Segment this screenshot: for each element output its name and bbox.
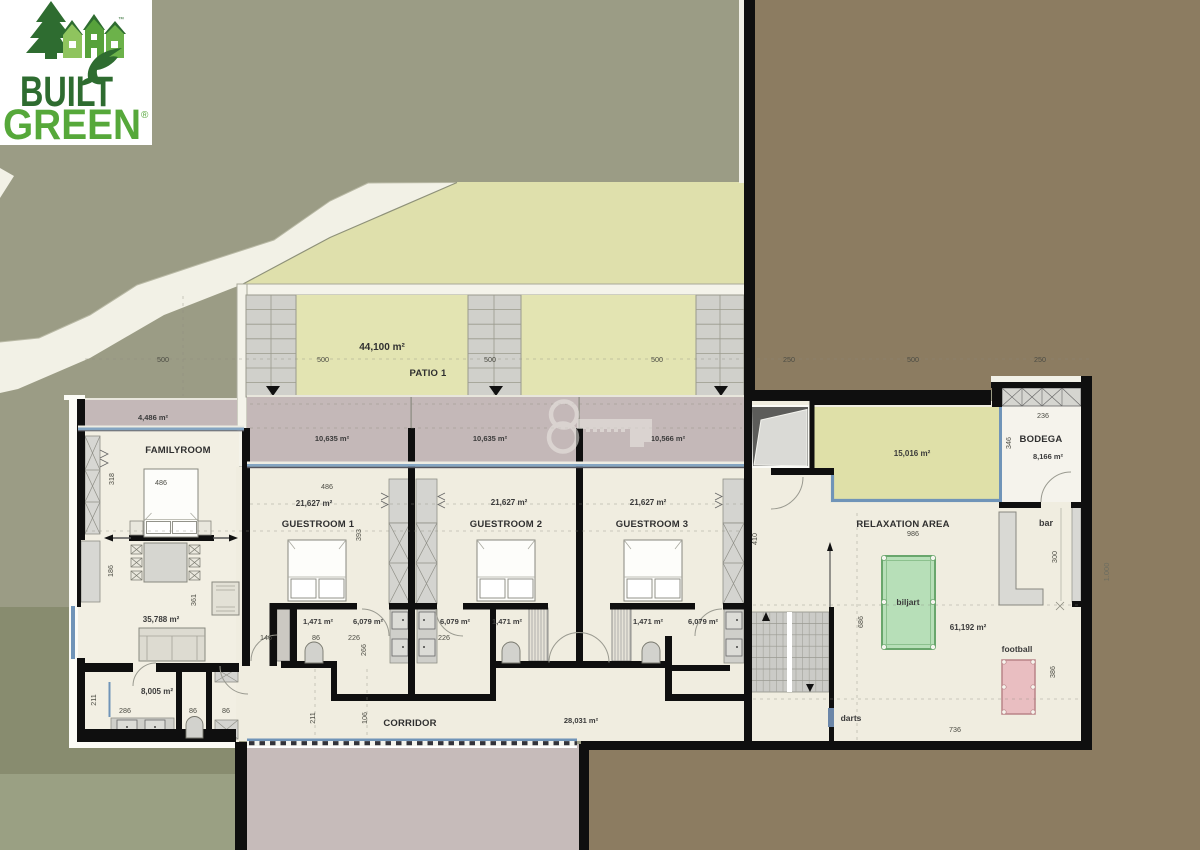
svg-text:410: 410: [750, 533, 759, 545]
svg-text:226: 226: [438, 633, 450, 642]
svg-text:BODEGA: BODEGA: [1020, 434, 1063, 445]
svg-text:486: 486: [155, 478, 167, 487]
svg-text:GUESTROOM 3: GUESTROOM 3: [616, 519, 688, 530]
svg-text:10,635 m²: 10,635 m²: [473, 434, 508, 443]
svg-text:10,566 m²: 10,566 m²: [651, 434, 686, 443]
svg-text:986: 986: [907, 529, 919, 538]
svg-text:™: ™: [118, 16, 124, 23]
svg-text:4,486 m²: 4,486 m²: [138, 413, 169, 422]
svg-text:86: 86: [312, 633, 320, 642]
svg-text:21,627 m²: 21,627 m²: [491, 498, 528, 507]
svg-text:21,627 m²: 21,627 m²: [296, 499, 333, 508]
svg-text:393: 393: [354, 529, 363, 541]
svg-text:211: 211: [89, 694, 98, 705]
svg-text:1,471 m²: 1,471 m²: [492, 617, 523, 626]
svg-text:386: 386: [1048, 666, 1057, 678]
svg-text:266: 266: [359, 644, 368, 656]
svg-text:500: 500: [317, 355, 329, 364]
svg-text:250: 250: [1034, 355, 1046, 364]
svg-text:10,635 m²: 10,635 m²: [315, 434, 350, 443]
svg-text:1.000: 1.000: [1102, 563, 1111, 582]
svg-text:500: 500: [907, 355, 919, 364]
svg-text:GREEN: GREEN: [3, 101, 141, 149]
svg-text:CORRIDOR: CORRIDOR: [383, 718, 436, 729]
svg-text:486: 486: [321, 482, 333, 491]
svg-text:1,471 m²: 1,471 m²: [633, 617, 664, 626]
svg-text:15,016 m²: 15,016 m²: [894, 449, 931, 458]
svg-text:500: 500: [157, 355, 169, 364]
svg-text:500: 500: [651, 355, 663, 364]
svg-text:football: football: [1002, 644, 1033, 654]
svg-text:226: 226: [348, 633, 360, 642]
svg-text:361: 361: [189, 594, 198, 606]
svg-text:318: 318: [107, 473, 116, 485]
svg-text:PATIO 1: PATIO 1: [410, 368, 447, 379]
svg-text:35,788 m²: 35,788 m²: [143, 615, 180, 624]
svg-text:106: 106: [360, 712, 369, 724]
svg-text:346: 346: [1004, 437, 1013, 449]
svg-text:211: 211: [308, 712, 317, 723]
svg-text:21,627 m²: 21,627 m²: [630, 498, 667, 507]
svg-text:86: 86: [222, 706, 230, 715]
svg-text:8,005 m²: 8,005 m²: [141, 687, 173, 696]
svg-text:250: 250: [783, 355, 795, 364]
svg-text:86: 86: [189, 706, 197, 715]
svg-text:736: 736: [949, 725, 961, 734]
svg-text:186: 186: [106, 565, 115, 577]
svg-text:44,100 m²: 44,100 m²: [359, 342, 405, 353]
svg-text:6,079 m²: 6,079 m²: [353, 617, 384, 626]
svg-text:1,471 m²: 1,471 m²: [303, 617, 334, 626]
svg-text:6,079 m²: 6,079 m²: [688, 617, 719, 626]
svg-text:146: 146: [260, 633, 272, 642]
svg-text:500: 500: [484, 355, 496, 364]
svg-text:300: 300: [1050, 551, 1059, 563]
svg-text:236: 236: [1037, 411, 1049, 420]
svg-text:61,192 m²: 61,192 m²: [950, 623, 987, 632]
svg-text:GUESTROOM 1: GUESTROOM 1: [282, 519, 355, 530]
svg-text:686: 686: [856, 616, 865, 628]
svg-text:8,166 m²: 8,166 m²: [1033, 452, 1064, 461]
svg-text:6,079 m²: 6,079 m²: [440, 617, 471, 626]
svg-text:28,031 m²: 28,031 m²: [564, 716, 599, 725]
svg-text:286: 286: [119, 706, 131, 715]
svg-text:®: ®: [141, 110, 149, 121]
svg-text:darts: darts: [841, 713, 862, 723]
svg-text:biljart: biljart: [896, 597, 919, 607]
svg-text:FAMILYROOM: FAMILYROOM: [145, 445, 211, 456]
svg-text:GUESTROOM 2: GUESTROOM 2: [470, 519, 542, 530]
svg-text:RELAXATION AREA: RELAXATION AREA: [856, 519, 949, 530]
svg-text:bar: bar: [1039, 518, 1054, 528]
